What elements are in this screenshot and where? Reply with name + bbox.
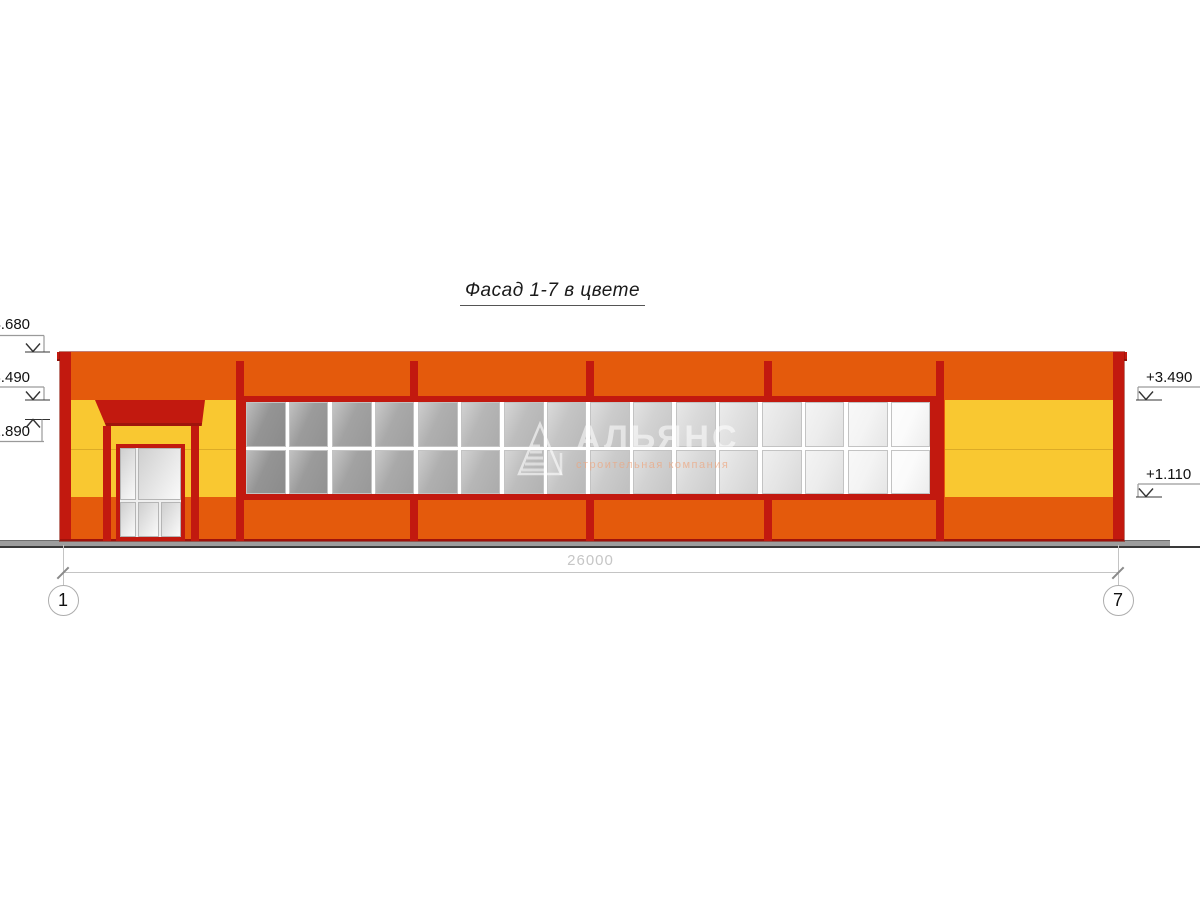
window-pane — [289, 450, 329, 495]
window-pane — [504, 402, 544, 447]
window-pane — [676, 450, 716, 495]
window-pane — [547, 402, 587, 447]
right-lower-orange-band — [945, 497, 1113, 539]
right-yellow-band — [945, 400, 1113, 497]
drawing-title-block: Фасад 1-7 в цвете — [400, 280, 705, 306]
window-pane — [504, 450, 544, 495]
window-pane — [332, 450, 372, 495]
window-unit — [332, 402, 414, 494]
window-unit — [246, 402, 328, 494]
door-leaf-top-pane — [138, 448, 181, 500]
dimension-value: 26000 — [520, 552, 661, 569]
canopy-post-left — [103, 426, 111, 541]
dimension-line — [63, 572, 1118, 573]
axis-bubble-1: 1 — [48, 585, 79, 616]
window-pane — [332, 402, 372, 447]
window-pane — [719, 450, 759, 495]
drawing-title: Фасад 1-7 в цвете — [460, 280, 645, 306]
corner-post-right — [1113, 352, 1124, 539]
window-pane — [418, 402, 458, 447]
window-pane — [375, 402, 415, 447]
elevation-arrow-down-icon — [0, 334, 52, 354]
window-pane — [762, 450, 802, 495]
canopy-post-right — [191, 426, 199, 541]
window-pane — [289, 402, 329, 447]
elevation-label: +4.680 — [0, 316, 30, 333]
window-pane — [719, 402, 759, 447]
ground-line — [0, 546, 1200, 548]
elevation-arrow-down-icon — [1136, 386, 1200, 402]
entrance-canopy — [95, 400, 205, 426]
window-pane — [805, 450, 845, 495]
corner-post-left — [60, 352, 71, 539]
window-pane — [762, 402, 802, 447]
window-unit — [504, 402, 586, 494]
window-pane — [848, 402, 888, 447]
window-pane — [461, 450, 501, 495]
window-pane — [891, 402, 931, 447]
door-leaf-bottom-pane — [138, 502, 159, 537]
window-unit — [762, 402, 844, 494]
extension-line-right — [1118, 545, 1119, 585]
window-pane — [848, 450, 888, 495]
door-leaf-bottom — [138, 502, 181, 537]
facade-mullion — [936, 361, 944, 541]
window-unit — [418, 402, 500, 494]
window-pane — [590, 402, 630, 447]
axis-bubble-7: 7 — [1103, 585, 1134, 616]
left-upper-orange-band — [71, 361, 247, 400]
window-pane — [547, 450, 587, 495]
extension-line-left — [63, 545, 64, 585]
elevation-arrow-down-icon — [0, 386, 52, 402]
door-glazing — [120, 448, 181, 537]
window-unit — [590, 402, 672, 494]
window-pane — [246, 450, 286, 495]
elevation-label: +1.110 — [1146, 466, 1191, 483]
window-pane — [805, 402, 845, 447]
window-pane — [633, 402, 673, 447]
elevation-arrow-up-icon — [0, 417, 52, 443]
window-unit — [676, 402, 758, 494]
window-pane — [633, 450, 673, 495]
elevation-arrow-down-icon — [1136, 483, 1200, 499]
window-grid — [246, 402, 930, 494]
door-sidelight-top-pane — [120, 448, 136, 500]
window-pane — [461, 402, 501, 447]
window-unit — [848, 402, 930, 494]
window-pane — [676, 402, 716, 447]
window-pane — [375, 450, 415, 495]
elevation-label: +3.490 — [0, 369, 30, 386]
window-pane — [891, 450, 931, 495]
ribbon-window-strip — [240, 396, 936, 500]
door-sidelight-bottom-pane — [120, 502, 136, 537]
right-upper-orange-band — [945, 361, 1113, 400]
panel-seam — [945, 449, 1113, 450]
window-pane — [590, 450, 630, 495]
window-pane — [418, 450, 458, 495]
elevation-label: +3.490 — [1146, 369, 1192, 386]
window-pane — [246, 402, 286, 447]
entrance-door — [116, 444, 185, 541]
building-facade — [60, 352, 1124, 541]
door-leaf-bottom-pane — [161, 502, 182, 537]
